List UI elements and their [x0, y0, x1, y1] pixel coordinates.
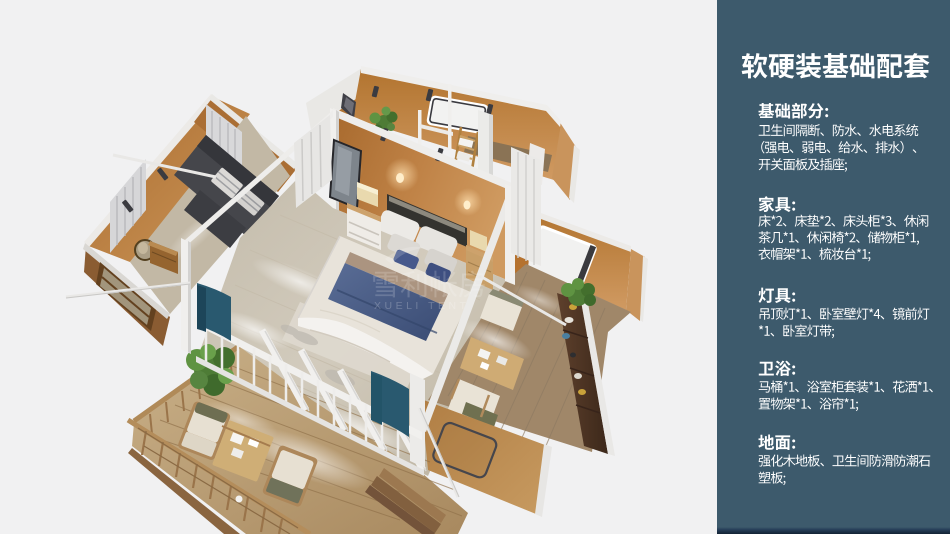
svg-text:XUELI TENT: XUELI TENT: [374, 300, 470, 312]
